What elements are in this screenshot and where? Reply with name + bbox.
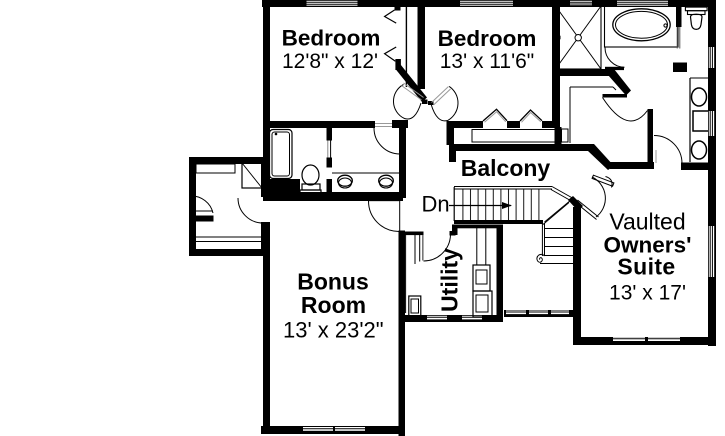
svg-text:13' x 23'2": 13' x 23'2": [283, 318, 384, 343]
svg-text:Dn: Dn: [421, 192, 449, 217]
svg-text:Balcony: Balcony: [461, 155, 551, 181]
svg-text:Utility: Utility: [437, 248, 463, 312]
svg-text:Bonus: Bonus: [297, 269, 369, 295]
svg-text:Suite: Suite: [617, 254, 675, 280]
svg-text:Bedroom: Bedroom: [282, 26, 381, 51]
svg-text:Bedroom: Bedroom: [438, 26, 537, 51]
svg-text:Room: Room: [301, 292, 366, 318]
svg-text:13' x 11'6": 13' x 11'6": [440, 50, 534, 73]
svg-text:13' x 17': 13' x 17': [609, 282, 686, 305]
svg-text:12'8" x 12': 12'8" x 12': [282, 50, 378, 73]
svg-text:Vaulted: Vaulted: [609, 209, 685, 235]
